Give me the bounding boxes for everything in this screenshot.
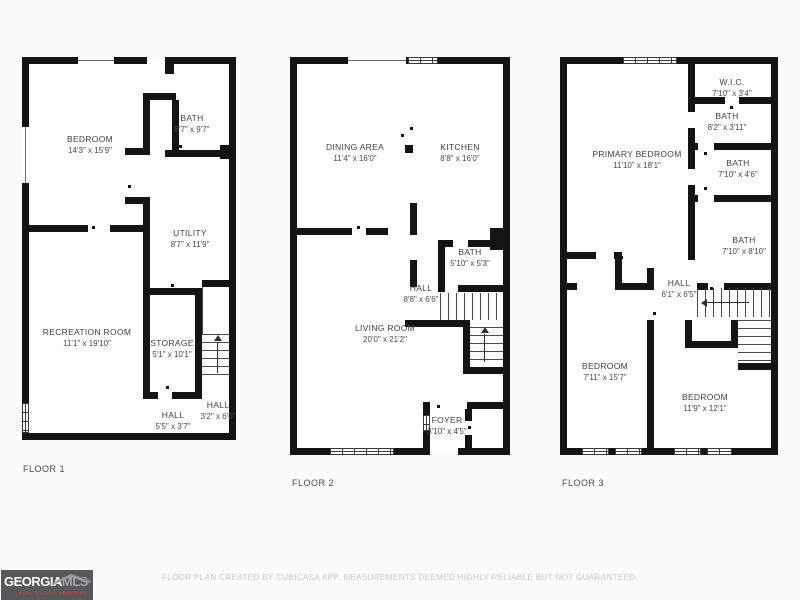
window <box>408 57 438 64</box>
wall-segment <box>647 320 654 448</box>
room-name: BATH <box>450 248 489 257</box>
window <box>348 60 406 61</box>
door-marker <box>730 106 733 109</box>
floor-plan-page: BEDROOM 14'3" x 15'9" BATH 8'7" x 9'7" U… <box>0 0 800 600</box>
door-marker <box>166 386 169 389</box>
room-dims: 8'8" x 16'0" <box>440 155 479 163</box>
room-dims: 3'10" x 4'5" <box>427 428 466 436</box>
room-name: BATH <box>708 112 747 121</box>
room-dims: 20'0" x 21'2" <box>355 336 415 344</box>
wall-segment <box>202 280 236 287</box>
room-dims: 8'7" x 9'7" <box>175 126 210 134</box>
wall-segment <box>22 433 236 440</box>
floor-1-plan: BEDROOM 14'3" x 15'9" BATH 8'7" x 9'7" U… <box>22 57 236 440</box>
door-marker <box>710 287 713 290</box>
room-label: BATH 7'10" x 4'6" <box>718 159 757 179</box>
wall-segment <box>771 57 778 455</box>
wall-opening <box>596 252 614 259</box>
wall-segment <box>220 145 229 159</box>
room-name: BEDROOM <box>67 135 113 144</box>
wall-segment <box>738 363 778 370</box>
wall-segment <box>165 64 174 74</box>
room-label: BEDROOM 7'11" x 15'7" <box>582 362 628 382</box>
wall-segment <box>731 320 738 348</box>
door-marker <box>410 127 413 130</box>
wall-segment <box>125 148 150 155</box>
room-dims: 7'10" x 8'10" <box>722 248 766 256</box>
stair-treads <box>470 327 503 367</box>
door-marker <box>92 226 95 229</box>
window <box>674 448 701 455</box>
stair-treads <box>738 320 771 363</box>
room-dims: 7'11" x 15'7" <box>582 374 628 382</box>
stair-edge <box>202 287 203 334</box>
wall-segment <box>143 100 150 148</box>
stairs-direction-arrow <box>217 342 218 373</box>
room-label: HALL 6'1" x 6'5" <box>662 279 697 299</box>
wall-opening <box>688 112 695 128</box>
room-dims: 3'2" x 6'0" <box>201 413 236 421</box>
room-name: BATH <box>718 159 757 168</box>
room-label: PRIMARY BEDROOM 11'10" x 18'1" <box>592 150 681 170</box>
wall-segment <box>467 402 503 409</box>
wall-segment <box>617 283 650 290</box>
room-label: HALL 5'5" x 3'7" <box>156 411 191 431</box>
wall-segment <box>143 288 150 395</box>
room-label: BATH 8'2" x 3'11" <box>708 112 747 132</box>
window <box>623 57 677 64</box>
stairs-direction-arrow-head <box>214 335 222 341</box>
room-dims: 5'10" x 5'3" <box>450 260 489 268</box>
floor-2-plan: DINING AREA 11'4" x 16'0" KITCHEN 8'8" x… <box>290 57 510 455</box>
wall-segment <box>463 367 510 374</box>
wall-segment <box>22 57 29 440</box>
wall-segment <box>22 225 88 232</box>
room-dims: 8'7" x 11'9" <box>171 241 210 249</box>
wall-segment <box>290 57 297 455</box>
window <box>330 448 394 455</box>
wall-segment <box>22 57 236 64</box>
wall-opening <box>698 195 714 202</box>
room-dims: 14'3" x 15'9" <box>67 147 113 155</box>
door-marker <box>128 185 131 188</box>
wall-segment <box>195 288 202 398</box>
room-dims: 11'4" x 16'0" <box>326 155 384 163</box>
wall-segment <box>110 225 145 232</box>
room-name: HALL <box>156 411 191 420</box>
room-dims: 11'1" x 19'10" <box>43 340 131 348</box>
room-name: DINING AREA <box>326 143 384 152</box>
wall-segment <box>688 64 695 260</box>
room-dims: 8'2" x 3'11" <box>708 124 747 132</box>
room-label: BATH 5'10" x 5'3" <box>450 248 489 268</box>
wall-opening <box>445 285 458 292</box>
wall-segment <box>465 435 472 448</box>
wall-opening <box>158 392 172 399</box>
room-name: FOYER <box>427 416 466 425</box>
room-name: BEDROOM <box>682 393 728 402</box>
wall-segment <box>143 392 202 399</box>
door-marker <box>357 226 360 229</box>
wall-opening <box>453 240 468 247</box>
room-dims: 6'1" x 6'5" <box>662 291 697 299</box>
window <box>582 448 609 455</box>
wall-opening <box>698 143 714 150</box>
room-name: HALL <box>404 284 439 293</box>
wall-segment <box>143 93 176 100</box>
room-label: KITCHEN 8'8" x 16'0" <box>440 143 479 163</box>
stairs-direction-arrow <box>484 334 485 362</box>
wall-opening <box>725 97 739 104</box>
wall-opening <box>430 448 458 455</box>
room-name: KITCHEN <box>440 143 479 152</box>
logo-tagline: REAL ESTATE SERVICES <box>18 591 75 595</box>
window <box>615 448 642 455</box>
room-label: HALL 3'2" x 6'0" <box>201 401 236 421</box>
room-label: HALL 8'8" x 6'6" <box>404 284 439 304</box>
door-marker <box>179 145 182 148</box>
wall-segment <box>685 341 737 348</box>
room-dims: 5'1" x 10'1" <box>150 351 194 359</box>
stairs-direction-arrow <box>707 302 749 303</box>
door-marker <box>704 187 707 190</box>
window <box>707 448 732 455</box>
wall-segment <box>143 288 202 295</box>
window <box>25 127 26 183</box>
room-dims: 7'10" x 4'6" <box>718 171 757 179</box>
door-marker <box>437 405 440 408</box>
stair-treads <box>440 293 503 320</box>
room-dims: 8'8" x 6'6" <box>404 296 439 304</box>
room-name: HALL <box>201 401 236 410</box>
wall-segment <box>490 228 503 250</box>
wall-segment <box>125 197 150 204</box>
room-name: UTILITY <box>171 229 210 238</box>
room-dims: 7'10" x 3'4" <box>712 90 751 98</box>
door-marker <box>653 312 656 315</box>
room-name: STORAGE <box>150 339 194 348</box>
window <box>78 60 114 61</box>
door-marker <box>401 134 404 137</box>
wall-segment <box>560 283 577 290</box>
room-label: UTILITY 8'7" x 11'9" <box>171 229 210 249</box>
door-marker <box>704 152 707 155</box>
room-label: STORAGE 5'1" x 10'1" <box>150 339 194 359</box>
stairs-direction-arrow-head <box>701 299 707 307</box>
wall-segment <box>410 203 417 235</box>
room-label: BATH 8'7" x 9'7" <box>175 114 210 134</box>
door-marker <box>620 256 623 259</box>
wall-segment <box>405 145 413 153</box>
room-label: BEDROOM 11'9" x 12'1" <box>682 393 728 413</box>
room-label: DINING AREA 11'4" x 16'0" <box>326 143 384 163</box>
room-name: HALL <box>662 279 697 288</box>
door-marker <box>171 284 174 287</box>
floor-1-caption: FLOOR 1 <box>23 464 65 474</box>
room-dims: 11'10" x 18'1" <box>592 162 681 170</box>
window <box>22 403 29 433</box>
room-name: LIVING ROOM <box>355 324 415 333</box>
door-marker <box>468 426 471 429</box>
wall-segment <box>229 57 236 440</box>
room-name: PRIMARY BEDROOM <box>592 150 681 159</box>
wall-segment <box>647 268 654 290</box>
disclaimer-text: FLOOR PLAN CREATED BY CUBICASA APP. MEAS… <box>0 573 800 582</box>
floor-3-plan: PRIMARY BEDROOM 11'10" x 18'1" W.I.C. 7'… <box>560 57 778 455</box>
room-name: W.I.C. <box>712 78 751 87</box>
room-label: BEDROOM 14'3" x 15'9" <box>67 135 113 155</box>
wall-segment <box>143 204 150 288</box>
wall-segment <box>503 57 510 455</box>
wall-opening <box>147 57 165 64</box>
room-label: LIVING ROOM 20'0" x 21'2" <box>355 324 415 344</box>
room-label: RECREATION ROOM 11'1" x 19'10" <box>43 328 131 348</box>
room-dims: 5'5" x 3'7" <box>156 423 191 431</box>
floor-2-caption: FLOOR 2 <box>292 478 334 488</box>
room-label: FOYER 3'10" x 4'5" <box>427 416 466 436</box>
wall-opening <box>352 228 366 235</box>
room-name: BATH <box>722 236 766 245</box>
room-name: RECREATION ROOM <box>43 328 131 337</box>
room-label: BATH 7'10" x 8'10" <box>722 236 766 256</box>
room-name: BATH <box>175 114 210 123</box>
wall-segment <box>290 448 510 455</box>
stairs-direction-arrow-head <box>481 327 489 333</box>
room-dims: 11'9" x 12'1" <box>682 405 728 413</box>
wall-opening <box>688 169 695 185</box>
room-label: W.I.C. 7'10" x 3'4" <box>712 78 751 98</box>
room-name: BEDROOM <box>582 362 628 371</box>
floor-3-caption: FLOOR 3 <box>562 478 604 488</box>
wall-segment <box>290 228 388 235</box>
